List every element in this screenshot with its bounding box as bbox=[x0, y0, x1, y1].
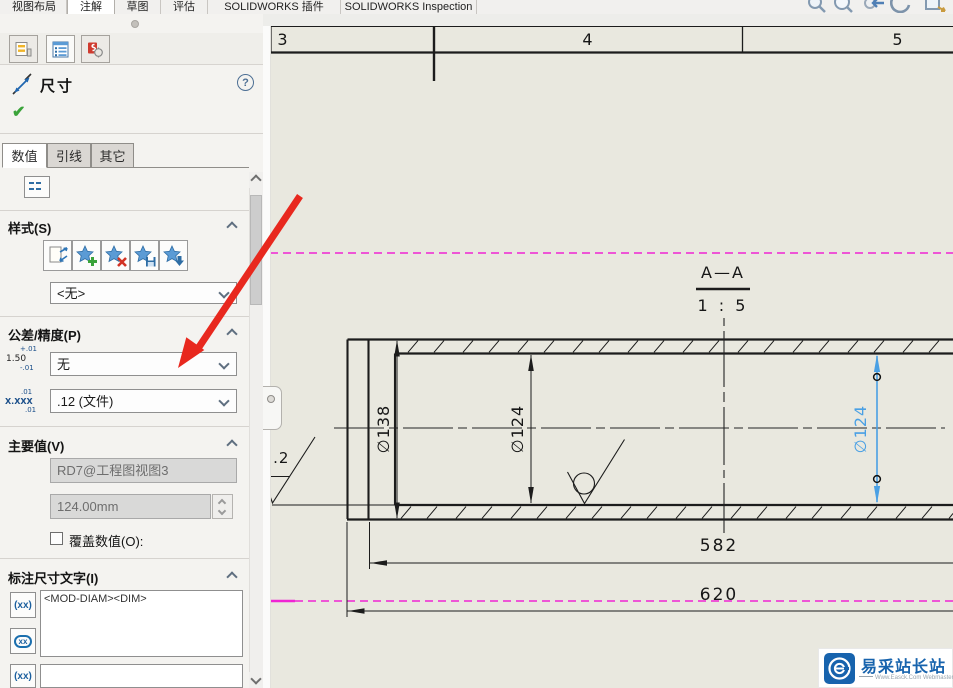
section-label: A—A bbox=[692, 263, 754, 282]
dimension-text-section-header[interactable]: 标注尺寸文字(I) bbox=[8, 568, 98, 587]
style-section-header[interactable]: 样式(S) bbox=[8, 218, 51, 237]
configuration-manager-icon bbox=[87, 41, 104, 58]
scrollbar-down-button[interactable] bbox=[249, 672, 263, 688]
override-value-label: 覆盖数值(O): bbox=[69, 531, 143, 550]
spinner-down-icon bbox=[218, 507, 226, 515]
style-dropdown[interactable]: <无> bbox=[50, 282, 237, 304]
collapse-dimtext-icon[interactable] bbox=[226, 571, 237, 582]
section-scale: 1 : 5 bbox=[692, 296, 754, 315]
tolerance-type-dropdown[interactable]: 无 bbox=[50, 352, 237, 376]
property-manager-icon bbox=[52, 41, 69, 58]
scrollbar-up-button[interactable] bbox=[249, 172, 263, 188]
rotate-view-icon[interactable] bbox=[890, 0, 912, 13]
panel-flyout-tab[interactable] bbox=[263, 386, 282, 430]
value-spinner bbox=[212, 494, 233, 519]
dimension-text-input[interactable]: <MOD-DIAM><DIM> bbox=[40, 590, 243, 657]
tab-configuration-manager[interactable] bbox=[81, 35, 110, 63]
tab-solidworks-addins[interactable]: SOLIDWORKS 插件 bbox=[208, 0, 341, 14]
help-icon[interactable]: ? bbox=[237, 74, 254, 91]
watermark-name: 易采站长站 bbox=[861, 653, 946, 677]
dimension-diameter-124[interactable]: ∅124 bbox=[508, 399, 528, 459]
dimension-text-input-2[interactable] bbox=[40, 664, 243, 688]
style-dropdown-value: <无> bbox=[57, 286, 85, 301]
tab-annotation[interactable]: 注解 bbox=[67, 0, 115, 14]
tabs-underline bbox=[134, 167, 249, 168]
apply-default-attributes-icon bbox=[47, 244, 69, 268]
panel-splitter[interactable] bbox=[263, 14, 271, 688]
tab-view-layout[interactable]: 视图布局 bbox=[2, 0, 67, 14]
zoom-to-fit-icon[interactable] bbox=[806, 0, 828, 13]
toolbar-strip bbox=[263, 14, 953, 26]
panel-handle-dot[interactable] bbox=[131, 20, 139, 28]
dimension-diameter-138[interactable]: ∅138 bbox=[374, 399, 394, 459]
primary-value-section-header[interactable]: 主要值(V) bbox=[8, 436, 64, 455]
tab-value[interactable]: 数值 bbox=[2, 143, 47, 168]
dimension-name-field: RD7@工程图视图3 bbox=[50, 458, 237, 483]
tolerance-section-header[interactable]: 公差/精度(P) bbox=[8, 325, 81, 344]
scroll-down-icon bbox=[250, 673, 261, 684]
dimension-length-582[interactable]: 582 bbox=[689, 536, 749, 556]
previous-view-icon[interactable] bbox=[862, 0, 886, 13]
solidworks-window: 3 4 5 A—A 1 : 5 ∅138 ∅124 ∅124 582 620 3… bbox=[0, 0, 953, 688]
zone-number-3: 3 bbox=[275, 30, 291, 49]
pan-icon[interactable] bbox=[924, 0, 948, 13]
precision-icon: .01 X.XXX .01 bbox=[5, 389, 45, 419]
scroll-up-icon bbox=[250, 174, 261, 185]
dimension-icon bbox=[11, 72, 35, 96]
selected-dimension-graphics bbox=[874, 355, 881, 504]
add-style-icon bbox=[75, 244, 99, 268]
dimension-diameter-124-selected[interactable]: ∅124 bbox=[851, 399, 871, 459]
tab-other[interactable]: 其它 bbox=[91, 143, 134, 168]
delete-style-button[interactable] bbox=[101, 240, 130, 271]
dashed-lines-icon bbox=[25, 177, 49, 197]
load-style-icon bbox=[162, 244, 186, 268]
watermark: 易采站长站 Www.Easck.Com Webmaster bbox=[818, 648, 953, 688]
zone-number-4: 4 bbox=[568, 30, 608, 49]
chevron-down-icon bbox=[218, 287, 229, 298]
tab-solidworks-inspection[interactable]: SOLIDWORKS Inspection bbox=[341, 0, 477, 14]
tolerance-type-icon: +.01 1.50 -.01 bbox=[6, 346, 46, 380]
chevron-down-icon bbox=[218, 395, 229, 406]
override-value-checkbox[interactable] bbox=[50, 532, 63, 545]
dimension-value-field: 124.00mm bbox=[50, 494, 211, 519]
panel-title: 尺寸 bbox=[40, 75, 74, 96]
tab-evaluate[interactable]: 评估 bbox=[161, 0, 208, 14]
collapse-style-icon[interactable] bbox=[226, 221, 237, 232]
tab-leaders[interactable]: 引线 bbox=[47, 143, 91, 168]
delete-style-icon bbox=[104, 244, 128, 268]
ok-button[interactable]: ✔ bbox=[12, 102, 25, 122]
watermark-logo-icon bbox=[824, 653, 855, 684]
add-style-button[interactable] bbox=[72, 240, 101, 271]
load-style-button[interactable] bbox=[159, 240, 188, 271]
chevron-down-icon bbox=[218, 358, 229, 369]
panel-icon-tabstrip bbox=[0, 33, 263, 65]
dim-text-position-button-2[interactable]: xx bbox=[10, 628, 36, 654]
zone-number-5: 5 bbox=[878, 30, 918, 49]
precision-dropdown[interactable]: .12 (文件) bbox=[50, 389, 237, 413]
favorite-button-partial[interactable] bbox=[24, 176, 50, 198]
apply-default-attributes-button[interactable] bbox=[43, 240, 72, 271]
save-style-icon bbox=[133, 244, 157, 268]
scrollbar-thumb[interactable] bbox=[250, 195, 262, 305]
collapse-primary-icon[interactable] bbox=[226, 439, 237, 450]
collapse-tolerance-icon[interactable] bbox=[226, 328, 237, 339]
dim-text-position-button-3[interactable]: (xx) bbox=[10, 664, 36, 688]
precision-value: .12 (文件) bbox=[57, 394, 113, 409]
zoom-to-area-icon[interactable] bbox=[832, 0, 854, 13]
command-manager-tabs: 视图布局 注解 草图 评估 SOLIDWORKS 插件 SOLIDWORKS I… bbox=[0, 0, 953, 14]
dimension-length-620[interactable]: 620 bbox=[689, 585, 749, 605]
property-manager-panel: 尺寸 ? ✔ 数值 引线 其它 样式(S) <无> bbox=[0, 14, 263, 688]
dim-text-position-button-1[interactable]: (xx) bbox=[10, 592, 36, 618]
feature-manager-icon bbox=[15, 41, 32, 58]
watermark-subtitle: Www.Easck.Com Webmaster bbox=[859, 675, 953, 681]
tab-sketch[interactable]: 草图 bbox=[115, 0, 161, 14]
save-style-button[interactable] bbox=[130, 240, 159, 271]
flyout-handle-dot bbox=[267, 395, 275, 403]
tab-feature-manager[interactable] bbox=[9, 35, 38, 63]
tab-property-manager[interactable] bbox=[46, 35, 75, 63]
tolerance-type-value: 无 bbox=[57, 357, 70, 372]
